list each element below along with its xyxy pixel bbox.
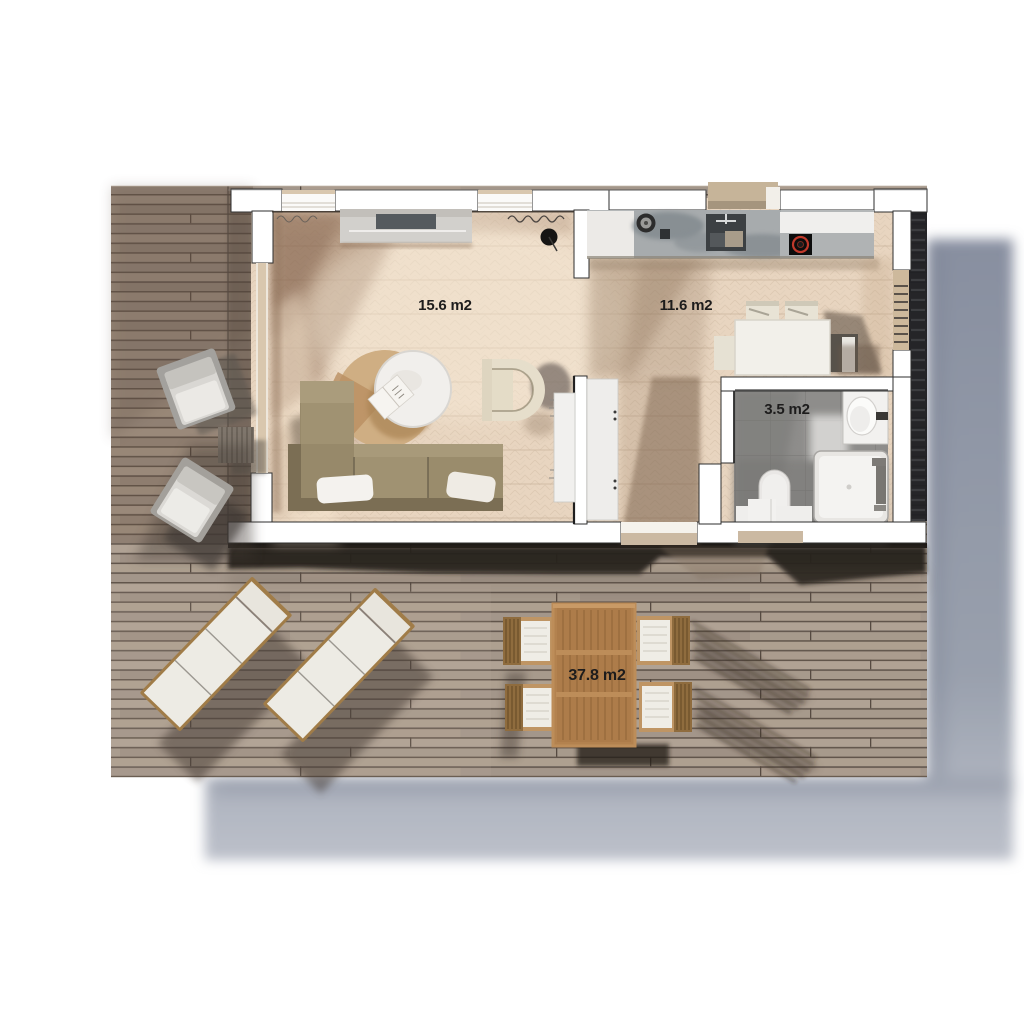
svg-text:37.8 m2: 37.8 m2 (568, 667, 626, 684)
svg-text:11.6 m2: 11.6 m2 (660, 297, 713, 314)
svg-text:15.6 m2: 15.6 m2 (418, 297, 472, 314)
svg-text:3.5 m2: 3.5 m2 (764, 401, 810, 418)
